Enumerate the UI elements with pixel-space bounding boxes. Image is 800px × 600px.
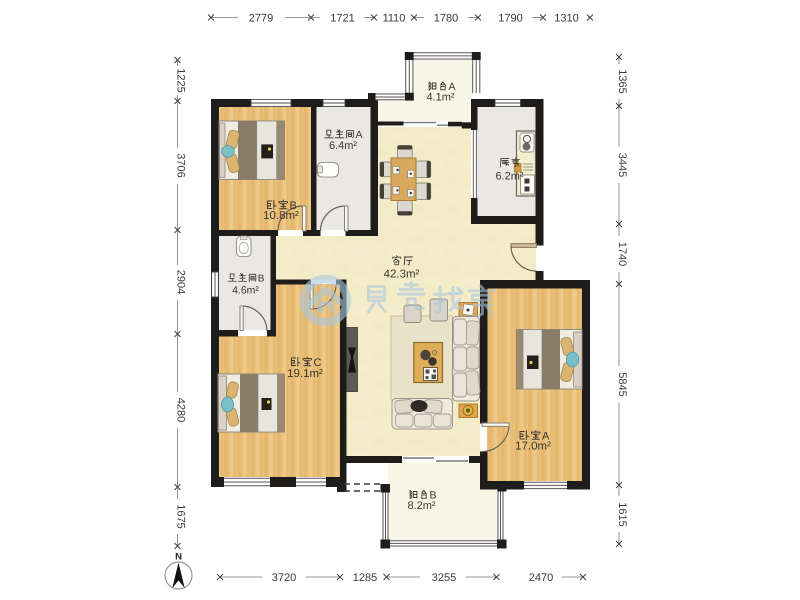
- svg-text:4.6m²: 4.6m²: [232, 285, 259, 297]
- svg-text:19.1m²: 19.1m²: [287, 368, 323, 380]
- svg-text:3255: 3255: [432, 572, 456, 584]
- svg-text:42.3m²: 42.3m²: [384, 269, 420, 281]
- svg-text:1310: 1310: [554, 13, 578, 25]
- svg-text:8.2m²: 8.2m²: [407, 500, 435, 512]
- svg-text:1225: 1225: [175, 68, 187, 92]
- svg-text:2779: 2779: [249, 13, 273, 25]
- svg-text:1365: 1365: [616, 69, 628, 93]
- svg-text:1675: 1675: [175, 504, 187, 528]
- svg-text:1740: 1740: [616, 242, 628, 266]
- svg-text:1721: 1721: [330, 13, 354, 25]
- svg-text:6.2m²: 6.2m²: [495, 171, 523, 183]
- svg-text:6.4m²: 6.4m²: [329, 140, 357, 152]
- svg-text:17.0m²: 17.0m²: [515, 441, 551, 453]
- svg-text:3720: 3720: [272, 572, 296, 584]
- svg-text:1110: 1110: [383, 13, 406, 25]
- svg-text:2904: 2904: [175, 270, 187, 294]
- svg-text:10.8m²: 10.8m²: [263, 210, 299, 222]
- svg-text:1790: 1790: [498, 13, 522, 25]
- svg-text:1615: 1615: [616, 502, 628, 526]
- svg-text:3706: 3706: [175, 153, 187, 177]
- svg-text:1285: 1285: [353, 572, 377, 584]
- svg-text:B: B: [258, 274, 265, 285]
- svg-text:4280: 4280: [175, 398, 187, 422]
- svg-text:4.1m²: 4.1m²: [426, 91, 454, 103]
- svg-text:2470: 2470: [529, 572, 553, 584]
- svg-text:3445: 3445: [616, 153, 628, 177]
- svg-text:N: N: [175, 552, 182, 563]
- svg-text:5845: 5845: [616, 372, 628, 396]
- svg-text:1780: 1780: [434, 13, 458, 25]
